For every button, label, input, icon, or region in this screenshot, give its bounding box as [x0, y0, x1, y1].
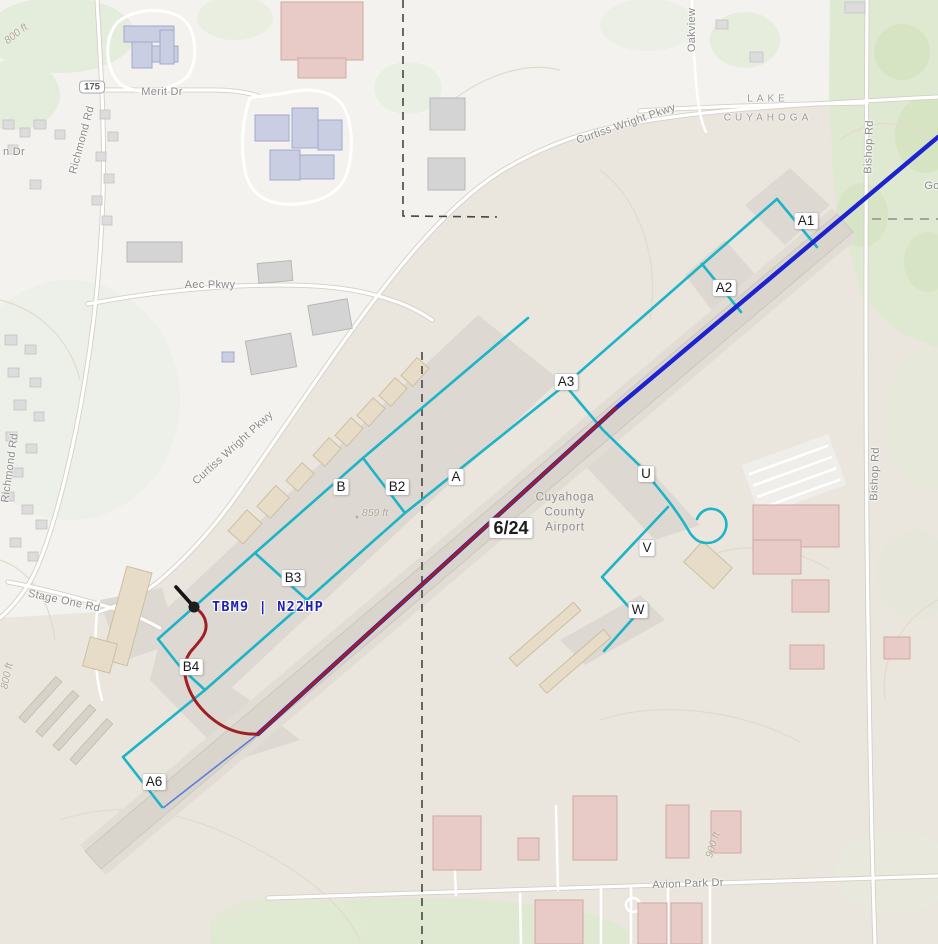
spot-elevation-dot [356, 516, 359, 519]
basemap [0, 0, 938, 944]
aircraft-position-dot [189, 602, 200, 613]
map-canvas[interactable]: A1 A2 A3 A B B2 B3 B4 A6 U V W 6/24 TBM9… [0, 0, 938, 944]
